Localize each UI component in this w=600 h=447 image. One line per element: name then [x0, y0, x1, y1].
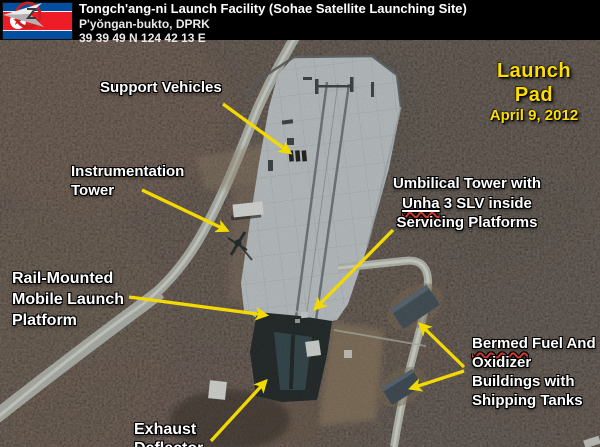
instrumentation-tower-label: Instrumentation Tower: [71, 162, 184, 200]
facility-title: Tongch'ang-ni Launch Facility (Sohae Sat…: [79, 1, 467, 16]
imagery-provider-logo-icon: [0, 0, 48, 32]
umbilical-tower-label: Umbilical Tower with Unha 3 SLV inside S…: [384, 174, 550, 233]
annotated-satellite-slide: Launch Pad April 9, 2012 Support Vehicle…: [0, 0, 600, 447]
rail-mounted-platform-label: Rail-Mounted Mobile Launch Platform: [12, 268, 124, 331]
headline-title: Launch Pad: [478, 59, 590, 107]
image-headline: Launch Pad April 9, 2012: [478, 59, 590, 124]
support-vehicles-label: Support Vehicles: [100, 78, 222, 97]
title-bar: ★ Tongch'ang-ni Launch Facility (Sohae S…: [0, 0, 600, 40]
misspell-underline: Bermed: [472, 335, 528, 352]
headline-date: April 9, 2012: [478, 107, 590, 124]
facility-coordinates: 39 39 49 N 124 42 13 E: [79, 31, 467, 45]
misspell-underline: Unha: [402, 195, 440, 212]
bermed-buildings-label: Bermed Fuel And Oxidizer Buildings with …: [472, 334, 596, 410]
exhaust-deflector-label: Exhaust Deflector: [134, 420, 203, 447]
facility-region: P'yŏngan-bukto, DPRK: [79, 17, 467, 31]
